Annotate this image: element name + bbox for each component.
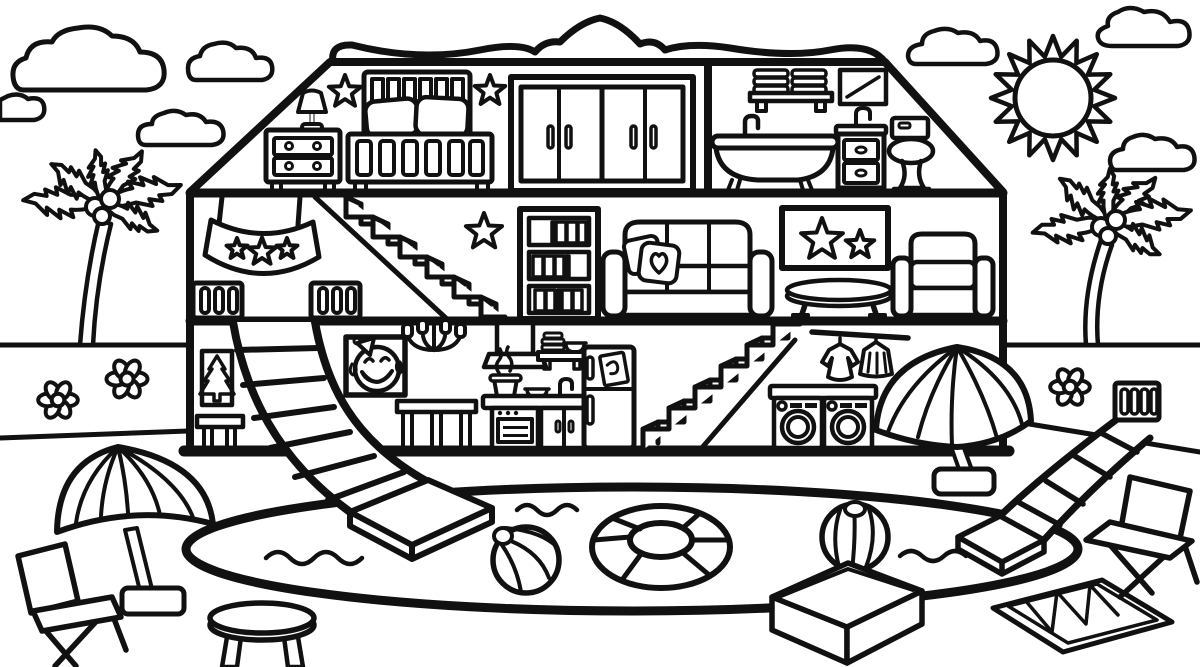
beach-ball-right: Beach ball (right) [822,502,888,570]
sun-disc [1015,60,1091,136]
beach-ball-pool: Beach ball (in pool) [493,527,559,593]
sun: Sun [991,36,1115,160]
coconut [1100,228,1116,244]
heart-pillow [638,242,680,284]
star-wall-art: Star wall art [782,208,888,268]
flower [38,380,78,420]
window-right: Window with bars [311,283,360,318]
coloring-page: Dollhouse beach coloring page Clouds Sun… [0,0,1200,667]
swim-ring: Swim ring float [592,506,730,588]
lamp [298,91,326,131]
washing-machine [774,398,822,448]
hanging-dress [822,344,858,380]
pool: Swimming pool Water ripples Swim ring fl… [186,487,1078,611]
fridge: Refrigerator [584,347,634,448]
sofa: Sofa with heart pillow [603,222,772,323]
washing-machine [824,398,872,448]
bookshelf: Bookshelf [520,209,598,319]
mirror: Mirror [840,70,886,104]
coconut [101,190,119,208]
flower [1050,367,1090,407]
flower [107,358,148,400]
emoji-picture: Laughing emoji picture [346,337,405,395]
coloring-page-canvas: Dollhouse beach coloring page Clouds Sun… [0,0,1200,667]
tree-picture: Tree picture [200,351,234,405]
bed: Bed with pillows [348,72,492,193]
chandelier: Chandelier [403,320,465,350]
window-left: Window with bars [193,283,242,318]
coconut [94,208,110,224]
laundry-machines: Washing machines [770,386,876,448]
wardrobe: Wardrobe closet [511,77,693,191]
slide-tower-panel [1115,383,1159,420]
